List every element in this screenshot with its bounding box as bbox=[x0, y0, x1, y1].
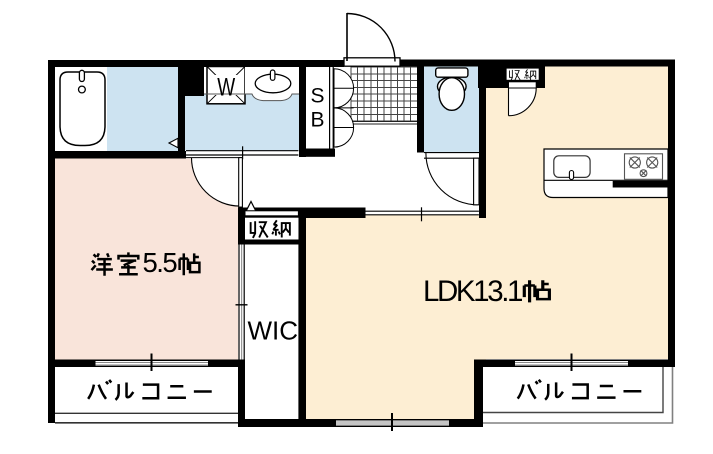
svg-text:B: B bbox=[311, 109, 325, 132]
svg-text:WIC: WIC bbox=[248, 316, 299, 346]
svg-text:LDK13.1: LDK13.1 bbox=[423, 275, 522, 308]
svg-text:W: W bbox=[217, 73, 235, 101]
svg-text:S: S bbox=[311, 85, 325, 108]
svg-text:5.5: 5.5 bbox=[143, 247, 178, 278]
